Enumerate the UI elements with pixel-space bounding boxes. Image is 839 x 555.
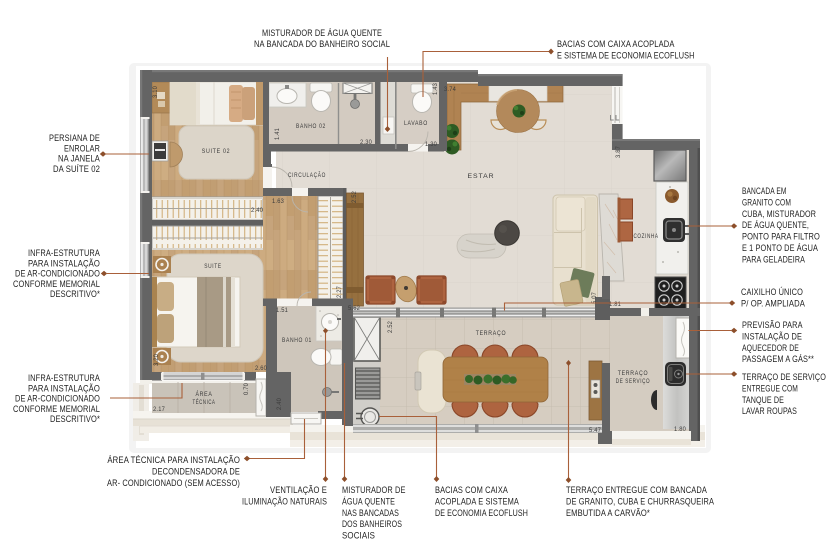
svg-text:5.47: 5.47 <box>589 428 601 434</box>
svg-text:ESTAR: ESTAR <box>468 173 495 180</box>
svg-text:EMBUTIDA A CARVÃO*: EMBUTIDA A CARVÃO* <box>566 508 650 518</box>
svg-text:COZINHA: COZINHA <box>634 233 659 240</box>
svg-text:DESCRITIVO*: DESCRITIVO* <box>50 289 100 299</box>
svg-text:3.74: 3.74 <box>444 87 456 93</box>
svg-text:AR- CONDICIONADO (SEM ACESSO): AR- CONDICIONADO (SEM ACESSO) <box>107 478 240 488</box>
svg-text:2.60: 2.60 <box>255 366 267 372</box>
svg-text:TERRAÇO DE SERVIÇO: TERRAÇO DE SERVIÇO <box>742 372 826 382</box>
svg-text:TERRAÇO: TERRAÇO <box>476 330 507 337</box>
svg-text:2.40: 2.40 <box>277 398 283 410</box>
svg-text:E 1 PONTO DE ÁGUA: E 1 PONTO DE ÁGUA <box>742 243 819 253</box>
svg-text:ÁGUA QUENTE: ÁGUA QUENTE <box>342 496 395 506</box>
svg-text:PASSAGEM A GÁS**: PASSAGEM A GÁS** <box>742 354 814 364</box>
svg-text:PARA INSTALAÇÃO: PARA INSTALAÇÃO <box>28 258 100 268</box>
svg-text:ACOPLADA E SISTEMA: ACOPLADA E SISTEMA <box>435 496 520 506</box>
svg-text:VENTILAÇÃO E: VENTILAÇÃO E <box>270 485 327 495</box>
svg-text:2.27: 2.27 <box>337 286 343 298</box>
svg-text:INFRA-ESTRUTURA: INFRA-ESTRUTURA <box>28 248 101 258</box>
svg-text:TERRAÇO ENTREGUE COM BANCADA: TERRAÇO ENTREGUE COM BANCADA <box>566 485 708 495</box>
svg-text:GRANITO COM: GRANITO COM <box>742 197 791 207</box>
svg-text:NAS BANCADAS: NAS BANCADAS <box>342 508 399 518</box>
svg-text:PARA GELADEIRA: PARA GELADEIRA <box>742 254 805 264</box>
svg-text:ÁREA TÉCNICA PARA INSTALAÇÃO: ÁREA TÉCNICA PARA INSTALAÇÃO <box>107 455 240 465</box>
svg-text:1.63: 1.63 <box>272 199 284 205</box>
svg-text:DE ECONOMIA ECOFLUSH: DE ECONOMIA ECOFLUSH <box>435 508 528 518</box>
svg-text:DECONDENSADORA DE: DECONDENSADORA DE <box>152 466 240 476</box>
svg-text:DE GRANITO, CUBA E CHURRASQUEI: DE GRANITO, CUBA E CHURRASQUEIRA <box>566 496 715 506</box>
svg-text:ENTREGUE COM: ENTREGUE COM <box>742 383 798 393</box>
svg-text:MISTURADOR DE ÁGUA QUENTE: MISTURADOR DE ÁGUA QUENTE <box>262 28 382 38</box>
svg-text:BACIAS COM CAIXA: BACIAS COM CAIXA <box>435 485 509 495</box>
svg-text:1.41: 1.41 <box>275 128 281 140</box>
svg-text:NA JANELA: NA JANELA <box>58 154 101 164</box>
svg-text:BACIAS COM CAIXA ACOPLADA: BACIAS COM CAIXA ACOPLADA <box>557 39 675 49</box>
svg-text:3.87: 3.87 <box>616 146 622 158</box>
svg-text:ENROLAR: ENROLAR <box>64 143 100 153</box>
svg-text:5.62: 5.62 <box>348 306 360 312</box>
svg-text:3.10: 3.10 <box>153 86 159 98</box>
svg-text:0.70: 0.70 <box>244 383 250 395</box>
svg-text:LAVAR ROUPAS: LAVAR ROUPAS <box>742 406 797 416</box>
svg-text:CIRCULAÇÃO: CIRCULAÇÃO <box>288 170 326 179</box>
svg-text:CONFORME MEMORIAL: CONFORME MEMORIAL <box>13 404 100 414</box>
svg-text:DE AR-CONDICIONADO: DE AR-CONDICIONADO <box>15 269 100 279</box>
svg-text:PARA INSTALAÇÃO: PARA INSTALAÇÃO <box>28 383 100 393</box>
svg-text:BANHO 02: BANHO 02 <box>296 123 326 130</box>
svg-text:DE ÁGUA QUENTE,: DE ÁGUA QUENTE, <box>742 220 809 230</box>
svg-text:3.20: 3.20 <box>154 354 160 366</box>
svg-text:2.30: 2.30 <box>360 140 372 146</box>
svg-text:PERSIANA DE: PERSIANA DE <box>49 133 100 143</box>
svg-text:1.51: 1.51 <box>276 308 288 314</box>
svg-text:E SISTEMA DE ECONOMIA ECOFLUSH: E SISTEMA DE ECONOMIA ECOFLUSH <box>557 51 695 61</box>
svg-text:AQUECEDOR DE: AQUECEDOR DE <box>742 343 799 353</box>
svg-text:1.30: 1.30 <box>425 142 437 148</box>
svg-text:DESCRITIVO*: DESCRITIVO* <box>50 414 100 424</box>
svg-text:MISTURADOR DE: MISTURADOR DE <box>342 485 406 495</box>
svg-text:ÁREA: ÁREA <box>196 389 213 398</box>
svg-text:SUITE: SUITE <box>204 263 222 270</box>
svg-text:DE SERVIÇO: DE SERVIÇO <box>616 378 651 385</box>
svg-text:2.52: 2.52 <box>388 321 394 333</box>
svg-text:DOS BANHEIROS: DOS BANHEIROS <box>342 519 402 529</box>
svg-text:TANQUE DE: TANQUE DE <box>742 395 784 405</box>
svg-text:LAVABO: LAVABO <box>404 120 428 127</box>
svg-text:PONTO PARA FILTRO: PONTO PARA FILTRO <box>742 232 820 242</box>
svg-text:CONFORME MEMORIAL: CONFORME MEMORIAL <box>13 279 100 289</box>
svg-text:CUBA, MISTURADOR: CUBA, MISTURADOR <box>742 209 816 219</box>
svg-text:BANHO 01: BANHO 01 <box>282 337 312 344</box>
svg-text:2.17: 2.17 <box>153 407 165 413</box>
svg-text:ILUMINAÇÃO NATURAIS: ILUMINAÇÃO NATURAIS <box>242 496 327 506</box>
svg-text:BANCADA EM: BANCADA EM <box>742 186 787 196</box>
svg-text:DA SUÍTE 02: DA SUÍTE 02 <box>53 164 100 174</box>
svg-text:SOCIAIS: SOCIAIS <box>342 531 375 541</box>
svg-text:1.80: 1.80 <box>674 427 686 433</box>
svg-text:INSTALAÇÃO DE: INSTALAÇÃO DE <box>742 331 802 341</box>
svg-text:2.52: 2.52 <box>352 191 358 203</box>
svg-text:DE AR-CONDICIONADO: DE AR-CONDICIONADO <box>15 394 100 404</box>
svg-text:1.43: 1.43 <box>433 83 439 95</box>
svg-text:TERRAÇO: TERRAÇO <box>618 370 649 377</box>
svg-text:5.07: 5.07 <box>592 292 598 304</box>
svg-text:INFRA-ESTRUTURA: INFRA-ESTRUTURA <box>28 373 101 383</box>
svg-text:2.40: 2.40 <box>251 208 263 214</box>
svg-text:CAIXILHO ÚNICO: CAIXILHO ÚNICO <box>741 287 803 297</box>
svg-text:TÉCNICA: TÉCNICA <box>193 397 216 406</box>
svg-text:SUITE 02: SUITE 02 <box>202 148 231 155</box>
svg-text:NA BANCADA DO BANHEIRO SOCIAL: NA BANCADA DO BANHEIRO SOCIAL <box>254 39 390 49</box>
svg-text:PREVISÃO PARA: PREVISÃO PARA <box>742 320 803 330</box>
svg-text:P/ OP. AMPLIADA: P/ OP. AMPLIADA <box>741 298 806 308</box>
